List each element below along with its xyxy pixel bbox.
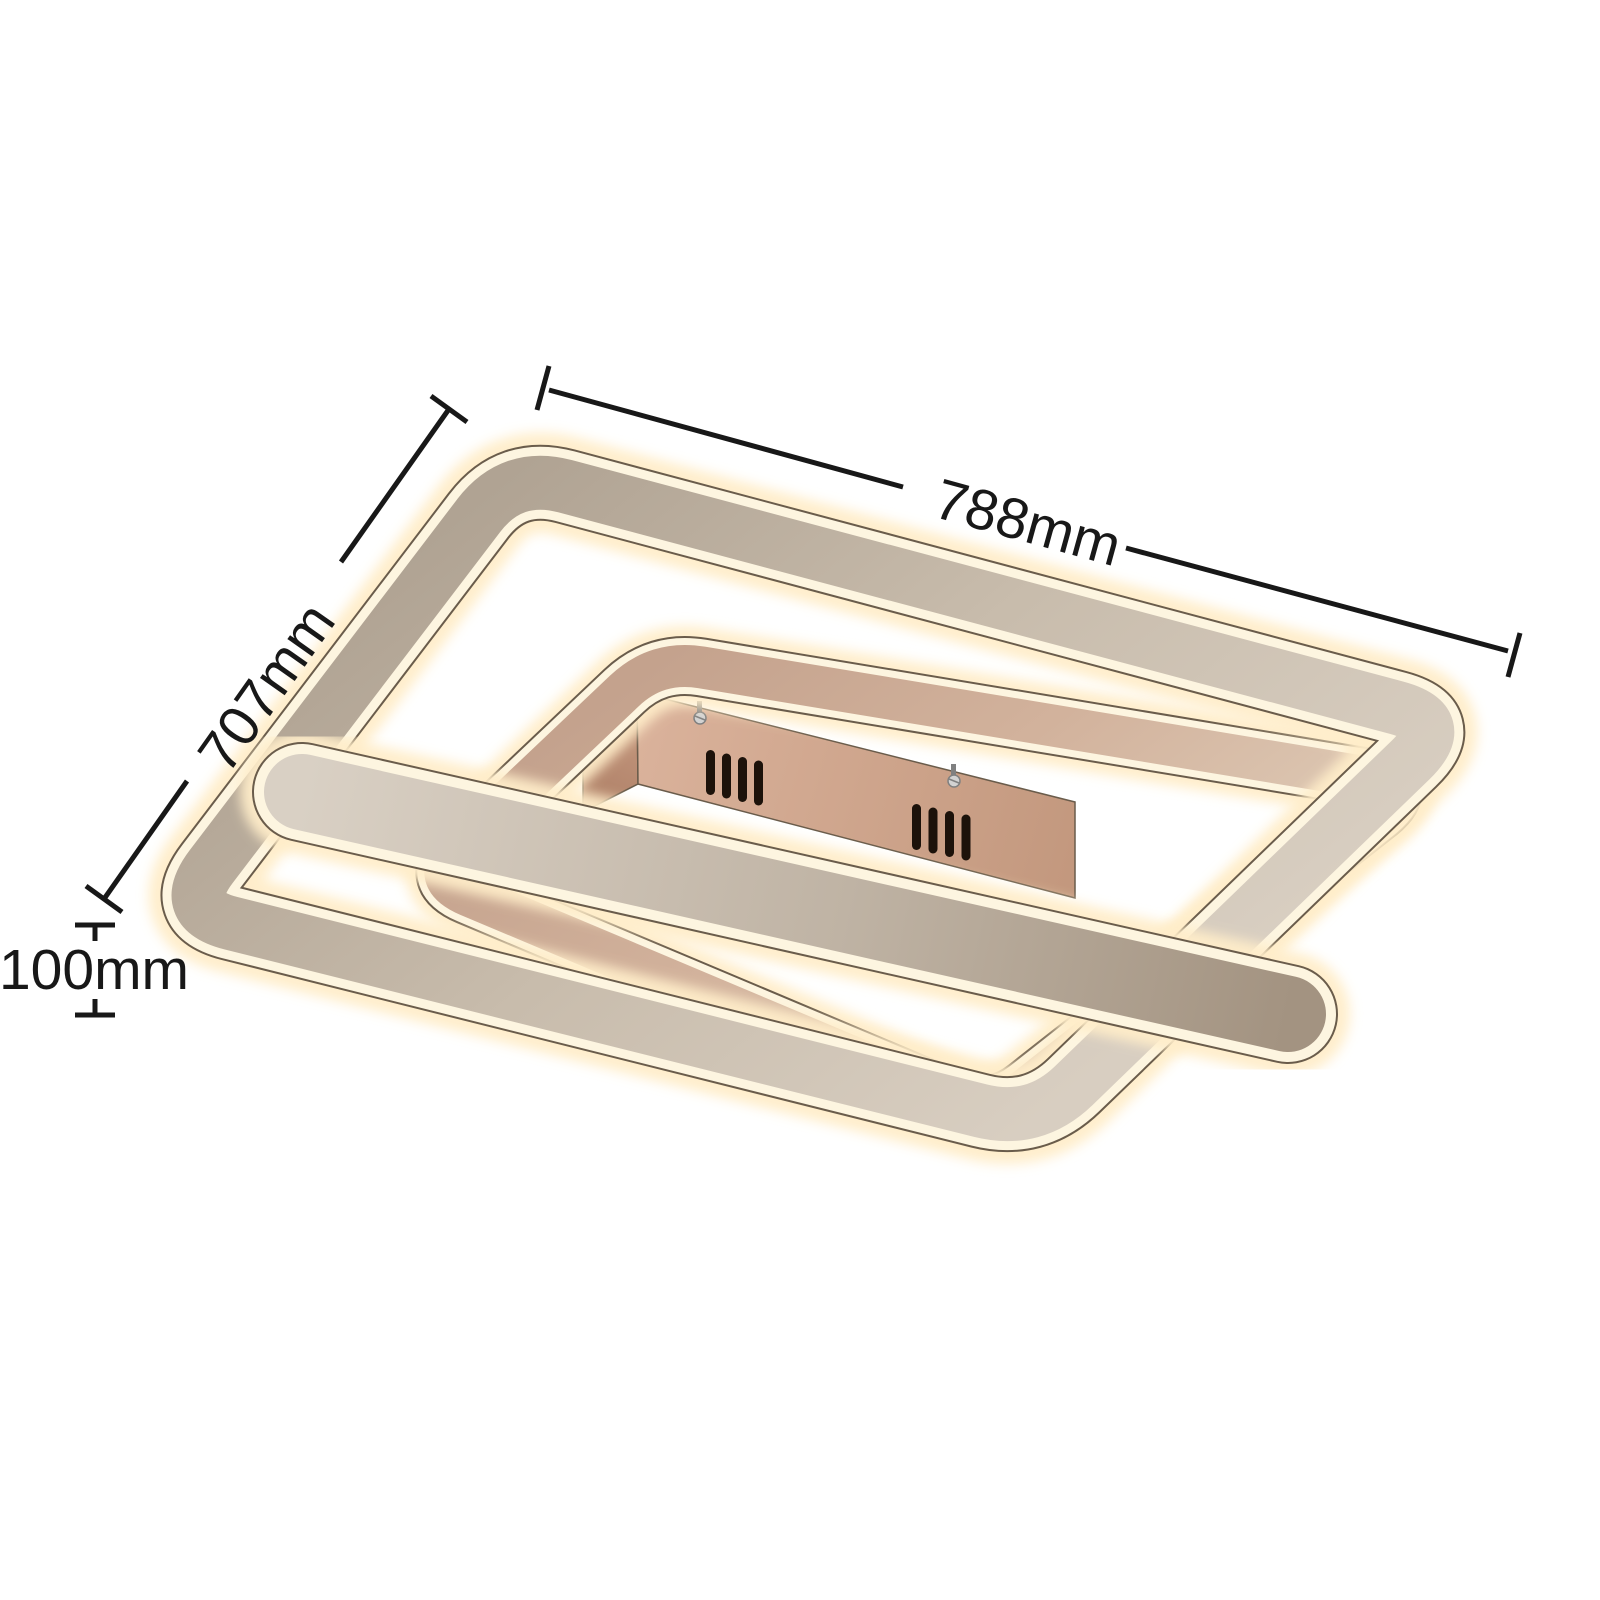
- dimension-height-label: 100mm: [0, 938, 189, 1002]
- vent-slot-right-4: [962, 815, 971, 861]
- vent-slot-left-1: [706, 750, 715, 795]
- dimension-depth-cap-bottom: [86, 886, 122, 912]
- vent-slot-right-1: [912, 804, 921, 850]
- vent-slot-left-3: [738, 757, 747, 802]
- vent-slot-left-2: [722, 754, 731, 799]
- ceiling-light-diagram: 788mm 707mm 100mm: [0, 0, 1600, 1600]
- dimension-height: 100mm: [0, 925, 189, 1015]
- dimension-width-cap-right: [1508, 633, 1520, 677]
- vent-slot-right-3: [945, 811, 954, 857]
- product-dimension-image: 788mm 707mm 100mm: [0, 0, 1600, 1600]
- dimension-width-cap-left: [537, 366, 549, 410]
- dimension-depth-cap-top: [431, 396, 467, 422]
- vent-slot-left-4: [754, 761, 763, 806]
- vent-slot-right-2: [929, 808, 938, 854]
